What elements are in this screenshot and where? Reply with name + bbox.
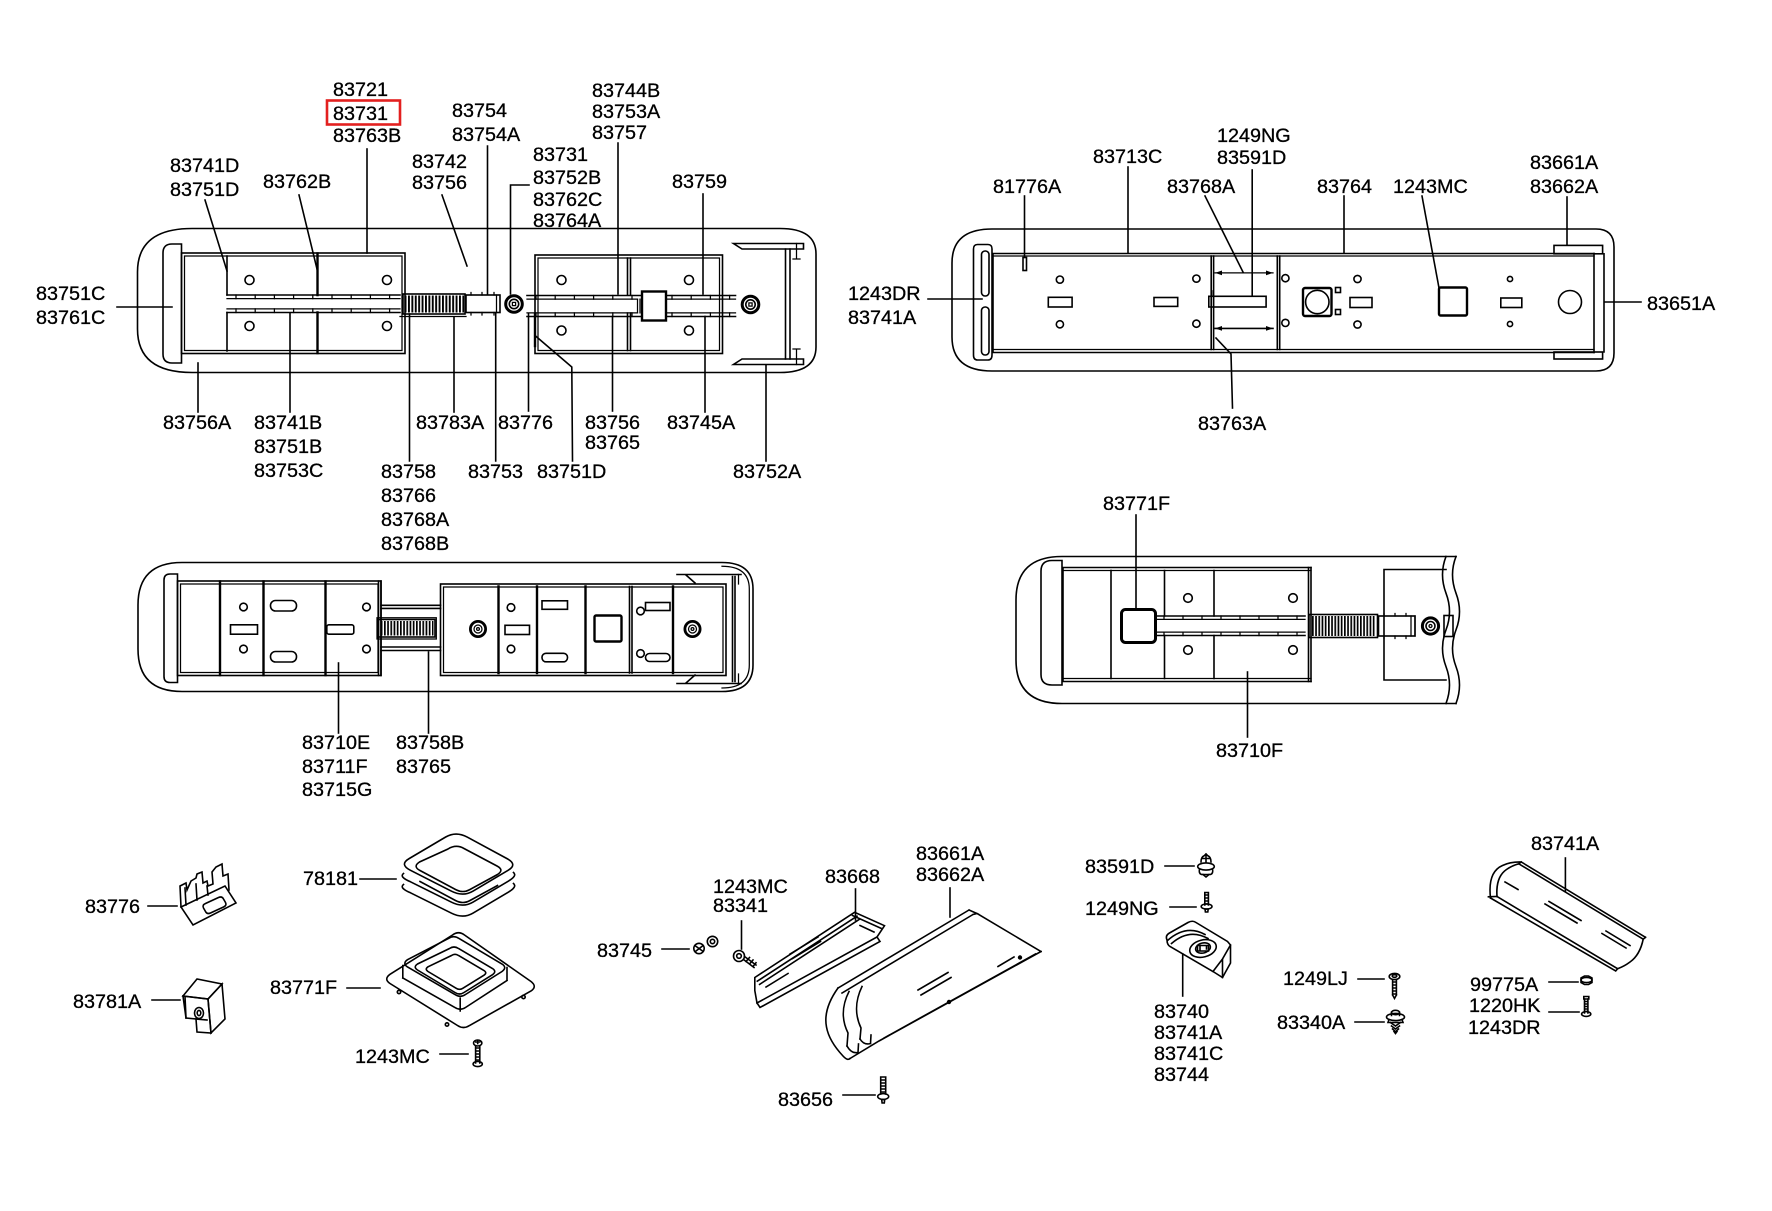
svg-text:83740: 83740	[1154, 1001, 1209, 1023]
svg-text:83754A: 83754A	[452, 124, 521, 146]
svg-text:83715G: 83715G	[302, 779, 372, 801]
svg-text:83668: 83668	[825, 866, 880, 888]
svg-text:1243DR: 1243DR	[1468, 1017, 1541, 1039]
svg-text:83741A: 83741A	[848, 307, 917, 329]
svg-text:83763B: 83763B	[333, 125, 401, 147]
svg-text:83751C: 83751C	[36, 283, 105, 305]
svg-text:83741D: 83741D	[170, 155, 239, 177]
svg-text:83752B: 83752B	[533, 167, 601, 189]
svg-text:83768A: 83768A	[381, 509, 450, 531]
svg-text:83753A: 83753A	[592, 101, 661, 123]
svg-text:83765: 83765	[396, 756, 451, 778]
svg-text:1249LJ: 1249LJ	[1283, 968, 1348, 990]
svg-text:83661A: 83661A	[916, 843, 985, 865]
svg-text:83761C: 83761C	[36, 307, 105, 329]
svg-text:83754: 83754	[452, 100, 507, 122]
svg-text:83741B: 83741B	[254, 412, 322, 434]
svg-text:99775A: 99775A	[1470, 974, 1539, 996]
svg-text:83752A: 83752A	[733, 461, 802, 483]
svg-text:83731: 83731	[333, 103, 388, 125]
svg-text:83731: 83731	[533, 144, 588, 166]
svg-text:83776: 83776	[85, 896, 140, 918]
svg-text:83759: 83759	[672, 171, 727, 193]
svg-text:83764A: 83764A	[533, 210, 602, 232]
svg-text:83758B: 83758B	[396, 732, 464, 754]
svg-text:83753: 83753	[468, 461, 523, 483]
svg-text:83710E: 83710E	[302, 732, 370, 754]
svg-text:1243DR: 1243DR	[848, 283, 921, 305]
svg-text:83756: 83756	[585, 412, 640, 434]
svg-text:83762B: 83762B	[263, 171, 331, 193]
svg-text:83766: 83766	[381, 485, 436, 507]
svg-text:83764: 83764	[1317, 176, 1372, 198]
svg-text:1220HK: 1220HK	[1469, 995, 1541, 1017]
svg-text:78181: 78181	[303, 868, 358, 890]
svg-text:83745A: 83745A	[667, 412, 736, 434]
svg-text:83340A: 83340A	[1277, 1012, 1346, 1034]
svg-text:83591D: 83591D	[1217, 147, 1286, 169]
svg-text:83662A: 83662A	[916, 864, 985, 886]
svg-text:83591D: 83591D	[1085, 856, 1154, 878]
svg-text:83763A: 83763A	[1198, 413, 1267, 435]
svg-text:83711F: 83711F	[302, 756, 368, 778]
svg-text:83713C: 83713C	[1093, 146, 1162, 168]
svg-text:83710F: 83710F	[1216, 740, 1283, 762]
svg-text:83745: 83745	[597, 940, 652, 962]
svg-text:1249NG: 1249NG	[1085, 898, 1159, 920]
svg-text:1249NG: 1249NG	[1217, 125, 1291, 147]
svg-text:83744B: 83744B	[592, 80, 660, 102]
svg-text:83756: 83756	[412, 172, 467, 194]
svg-text:83751D: 83751D	[170, 179, 239, 201]
svg-text:83656: 83656	[778, 1089, 833, 1111]
svg-text:83741A: 83741A	[1154, 1022, 1223, 1044]
svg-text:83741A: 83741A	[1531, 833, 1600, 855]
svg-text:83756A: 83756A	[163, 412, 232, 434]
svg-text:83662A: 83662A	[1530, 176, 1599, 198]
svg-text:1243MC: 1243MC	[1393, 176, 1468, 198]
svg-text:83758: 83758	[381, 461, 436, 483]
svg-text:83771F: 83771F	[1103, 493, 1170, 515]
svg-text:83753C: 83753C	[254, 460, 323, 482]
svg-text:83768A: 83768A	[1167, 176, 1236, 198]
svg-text:83751D: 83751D	[537, 461, 606, 483]
svg-text:83744: 83744	[1154, 1064, 1209, 1086]
svg-text:83751B: 83751B	[254, 436, 322, 458]
svg-text:83768B: 83768B	[381, 533, 449, 555]
svg-text:83776: 83776	[498, 412, 553, 434]
svg-text:83341: 83341	[713, 895, 768, 917]
svg-text:83771F: 83771F	[270, 977, 337, 999]
svg-text:83651A: 83651A	[1647, 293, 1716, 315]
svg-text:83783A: 83783A	[416, 412, 485, 434]
svg-text:83741C: 83741C	[1154, 1043, 1223, 1065]
svg-text:83757: 83757	[592, 122, 647, 144]
svg-text:83721: 83721	[333, 79, 388, 101]
svg-text:83762C: 83762C	[533, 189, 602, 211]
svg-text:83661A: 83661A	[1530, 152, 1599, 174]
svg-text:83765: 83765	[585, 432, 640, 454]
svg-text:1243MC: 1243MC	[355, 1046, 430, 1068]
svg-text:83781A: 83781A	[73, 991, 142, 1013]
svg-text:81776A: 81776A	[993, 176, 1062, 198]
svg-text:83742: 83742	[412, 151, 467, 173]
